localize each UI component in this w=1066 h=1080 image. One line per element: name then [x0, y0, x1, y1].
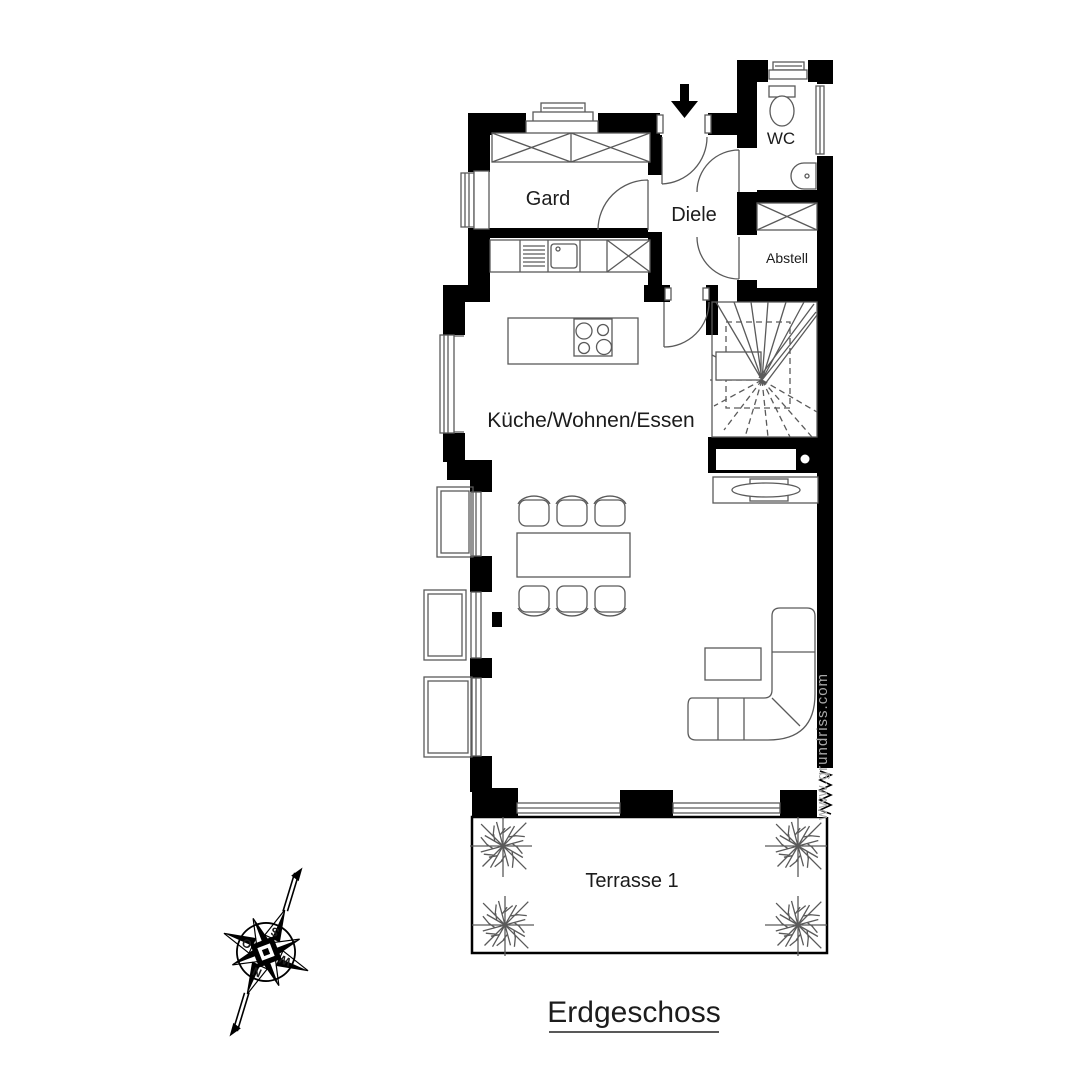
floor-plan: Terrasse 1: [0, 0, 1066, 1080]
kitchen-island: [508, 318, 638, 364]
room-label-terrace: Terrasse 1: [585, 870, 678, 892]
tv-sideboard: [713, 477, 818, 503]
wardrobe: [492, 133, 650, 162]
room-label-living: Küche/Wohnen/Essen: [487, 409, 694, 432]
coffee-table: [705, 648, 761, 680]
understair-closet: [716, 449, 796, 470]
kitchen-sink: [551, 244, 577, 268]
tv-icon: [732, 483, 800, 497]
watermark: www.grundriss.com: [814, 673, 831, 821]
chair: [518, 586, 550, 616]
window-gard-left: [461, 173, 474, 227]
room-label-abstell: Abstell: [766, 250, 808, 266]
terrace: Terrasse 1: [470, 817, 827, 956]
plan-title: Erdgeschoss: [547, 996, 720, 1029]
door-handle-mark: [492, 612, 502, 627]
room-label-diele: Diele: [671, 204, 717, 226]
chair: [518, 496, 550, 526]
toilet-icon: [770, 96, 794, 126]
room-label-wc: WC: [767, 129, 795, 148]
dining-table: [517, 533, 630, 577]
closet-knob: [801, 455, 810, 464]
chair: [556, 586, 588, 616]
window-living-left: [440, 335, 454, 433]
chair: [594, 586, 626, 616]
chair: [594, 496, 626, 526]
wc-sink: [791, 163, 816, 189]
dining-set: [517, 496, 630, 616]
kitchen-counter: [490, 240, 650, 272]
chair: [556, 496, 588, 526]
room-label-gard: Gard: [526, 188, 570, 210]
floor-plan-page: Terrasse 1: [0, 0, 1066, 1080]
storage-cabinet: [757, 203, 817, 230]
